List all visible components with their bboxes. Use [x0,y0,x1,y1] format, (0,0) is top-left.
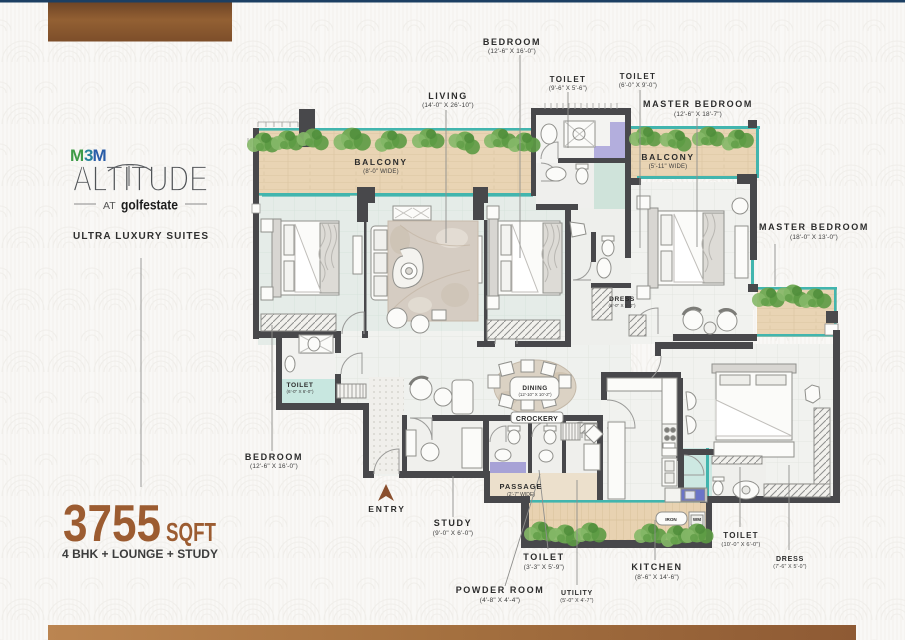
svg-text:STUDY: STUDY [434,518,473,528]
svg-text:UTILITY: UTILITY [561,590,593,597]
svg-text:(14'-0" X 26'-10"): (14'-0" X 26'-10") [422,102,474,109]
svg-text:DINING: DINING [522,385,547,392]
svg-text:TOILET: TOILET [287,382,314,389]
svg-text:(8'-0" WIDE): (8'-0" WIDE) [363,169,399,175]
svg-text:(3'-3" X 5'-9"): (3'-3" X 5'-9") [524,564,565,571]
svg-text:(12'-10" X 10'-2"): (12'-10" X 10'-2") [518,392,552,397]
svg-text:AT: AT [103,200,116,212]
svg-text:(10'-0" X 6'-0"): (10'-0" X 6'-0") [721,542,760,548]
svg-text:MASTER BEDROOM: MASTER BEDROOM [643,99,753,109]
svg-text:TOILET: TOILET [723,531,759,540]
svg-text:BEDROOM: BEDROOM [483,37,541,47]
svg-text:IRON: IRON [665,517,677,522]
svg-text:BALCONY: BALCONY [354,157,407,167]
svg-text:DRESS: DRESS [776,556,804,563]
svg-text:DRESS: DRESS [609,296,635,303]
svg-text:(6'-0" X 5'-0"): (6'-0" X 5'-0") [609,303,636,308]
svg-text:BALCONY: BALCONY [641,152,694,162]
svg-text:SQFT: SQFT [166,517,216,547]
svg-text:KITCHEN: KITCHEN [631,562,682,572]
svg-text:CROCKERY: CROCKERY [516,416,558,423]
svg-text:(7'-6" X 5'-0"): (7'-6" X 5'-0") [773,564,807,570]
svg-text:LIVING: LIVING [428,91,468,101]
svg-text:4 BHK + LOUNGE + STUDY: 4 BHK + LOUNGE + STUDY [62,547,218,561]
svg-text:(12'-6" X 16'-0"): (12'-6" X 16'-0") [488,48,536,55]
svg-text:(9'-0" X 6'-0"): (9'-0" X 6'-0") [433,530,474,537]
svg-text:(12'-6" X 16'-0"): (12'-6" X 16'-0") [250,463,298,470]
svg-text:MASTER BEDROOM: MASTER BEDROOM [759,222,869,232]
svg-text:(18'-0" X 13'-0"): (18'-0" X 13'-0") [790,234,838,241]
svg-text:ENTRY: ENTRY [368,504,406,514]
svg-text:golfestate: golfestate [121,198,178,213]
svg-text:3755: 3755 [63,495,161,553]
svg-text:TOILET: TOILET [550,75,587,84]
svg-text:(5'-11" WIDE): (5'-11" WIDE) [649,164,688,170]
svg-text:TOILET: TOILET [523,552,564,562]
svg-text:(5'-0" X 4'-7"): (5'-0" X 4'-7") [560,598,594,604]
svg-text:(2'-7" WIDE): (2'-7" WIDE) [507,492,535,498]
svg-text:BEDROOM: BEDROOM [245,452,303,462]
svg-text:(6'-0" X 9'-0"): (6'-0" X 9'-0") [619,83,657,89]
svg-text:POWDER ROOM: POWDER ROOM [456,585,545,595]
svg-text:(6'-0" X 6'-0"): (6'-0" X 6'-0") [287,389,314,394]
svg-text:ALTITUDE: ALTITUDE [73,158,208,199]
svg-text:WM: WM [693,517,701,522]
svg-text:(12'-6" X 18'-7"): (12'-6" X 18'-7") [674,111,722,118]
svg-text:(4'-8" X 4'-4"): (4'-8" X 4'-4") [480,597,521,604]
svg-text:ULTRA LUXURY SUITES: ULTRA LUXURY SUITES [73,231,208,242]
svg-text:(9'-6" X 5'-6"): (9'-6" X 5'-6") [549,86,587,92]
svg-text:(8'-6" X 14'-6"): (8'-6" X 14'-6") [635,574,679,581]
svg-text:TOILET: TOILET [620,72,657,81]
svg-text:PASSAGE: PASSAGE [499,482,542,491]
